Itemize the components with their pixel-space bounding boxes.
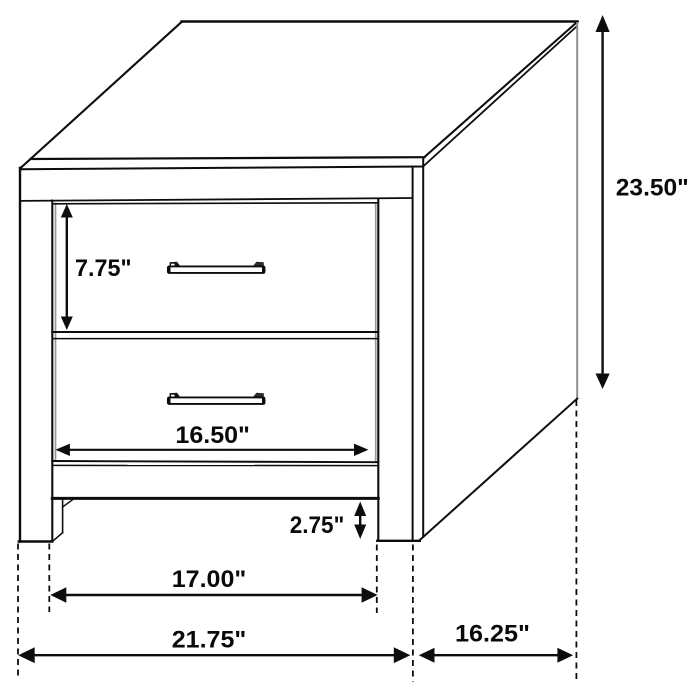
svg-text:16.25": 16.25" bbox=[455, 621, 530, 648]
svg-text:17.00": 17.00" bbox=[172, 566, 247, 593]
svg-text:21.75": 21.75" bbox=[172, 627, 247, 654]
svg-text:23.50": 23.50" bbox=[616, 175, 689, 202]
svg-text:7.75": 7.75" bbox=[75, 255, 132, 282]
svg-text:16.50": 16.50" bbox=[175, 422, 250, 449]
svg-text:2.75": 2.75" bbox=[290, 512, 345, 539]
